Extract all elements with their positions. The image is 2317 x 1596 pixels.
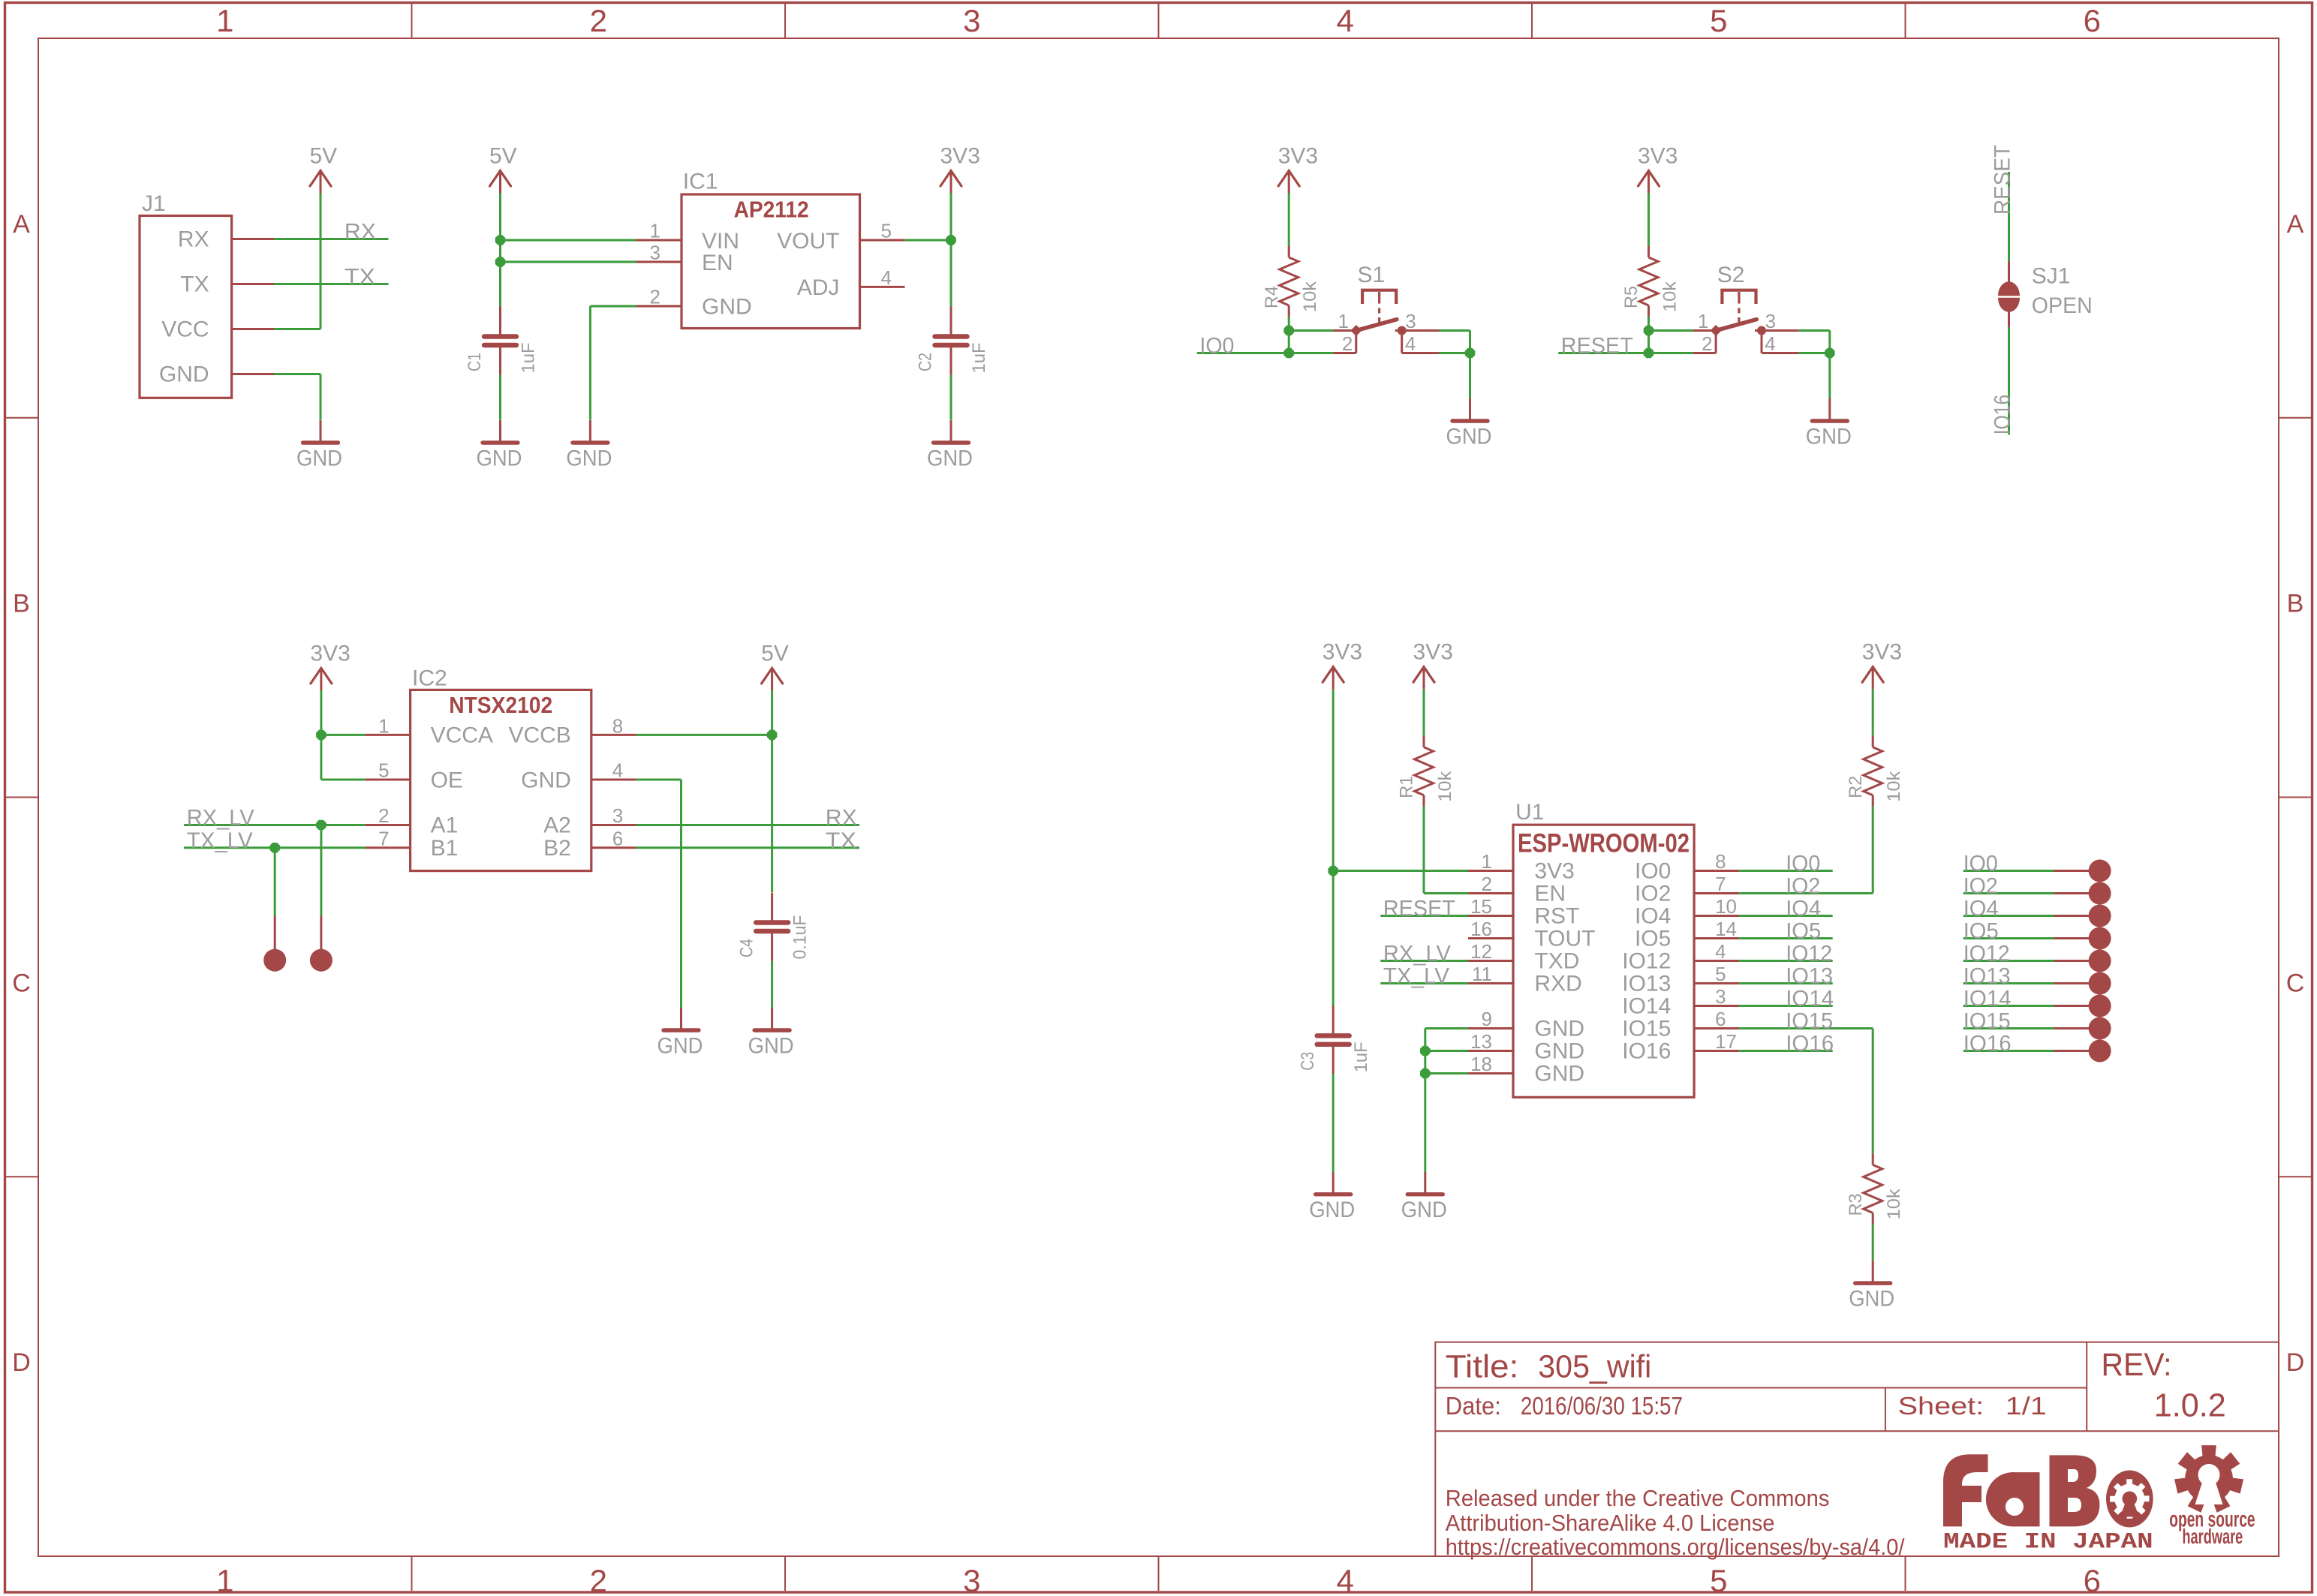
- svg-text:Date:: Date:: [1446, 1392, 1501, 1420]
- svg-text:IO16: IO16: [1963, 1032, 2012, 1056]
- svg-text:NTSX2102: NTSX2102: [449, 692, 552, 718]
- svg-text:R1: R1: [1397, 776, 1417, 798]
- svg-text:A2: A2: [543, 813, 571, 838]
- svg-text:IC1: IC1: [683, 170, 718, 194]
- svg-text:1: 1: [650, 220, 660, 242]
- svg-text:A: A: [2287, 210, 2304, 239]
- svg-text:3: 3: [612, 804, 623, 827]
- svg-text:10k: 10k: [1435, 771, 1455, 802]
- svg-text:OPEN: OPEN: [2032, 293, 2093, 318]
- svg-text:5: 5: [1715, 963, 1726, 985]
- svg-text:GND: GND: [477, 446, 522, 471]
- svg-text:B: B: [2287, 590, 2304, 618]
- svg-text:1: 1: [1338, 310, 1349, 332]
- svg-text:6: 6: [1715, 1008, 1726, 1030]
- svg-text:IO0: IO0: [1786, 852, 1820, 876]
- svg-text:4: 4: [881, 266, 892, 289]
- svg-text:3V3: 3V3: [1413, 640, 1453, 665]
- svg-text:B: B: [13, 590, 30, 618]
- svg-text:RX: RX: [345, 220, 376, 245]
- svg-text:2: 2: [590, 3, 607, 38]
- svg-text:IO4: IO4: [1963, 897, 1999, 921]
- svg-text:2: 2: [590, 1563, 607, 1596]
- svg-text:6: 6: [2084, 3, 2101, 38]
- svg-text:10k: 10k: [1660, 281, 1681, 312]
- svg-text:S1: S1: [1358, 263, 1386, 287]
- svg-text:MADE IN JAPAN: MADE IN JAPAN: [1943, 1529, 2153, 1555]
- svg-text:D: D: [12, 1348, 31, 1377]
- svg-text:3V3: 3V3: [1278, 144, 1318, 169]
- svg-text:C: C: [12, 969, 31, 997]
- svg-text:1: 1: [1698, 310, 1708, 332]
- svg-text:EN: EN: [1534, 882, 1566, 906]
- svg-text:IO0: IO0: [1963, 852, 1998, 876]
- svg-text:S2: S2: [1717, 263, 1745, 287]
- svg-text:IO14: IO14: [1963, 987, 2012, 1011]
- svg-text:https://creativecommons.org/li: https://creativecommons.org/licenses/by-…: [1446, 1534, 1905, 1560]
- svg-text:RESET: RESET: [1991, 145, 2015, 215]
- svg-text:16: 16: [1470, 918, 1492, 940]
- svg-text:GND: GND: [159, 362, 209, 387]
- svg-text:ESP-WROOM-02: ESP-WROOM-02: [1518, 828, 1690, 858]
- svg-text:A1: A1: [431, 813, 459, 838]
- svg-text:R3: R3: [1846, 1193, 1866, 1216]
- svg-text:IO4: IO4: [1786, 897, 1821, 921]
- svg-text:15: 15: [1470, 895, 1492, 918]
- svg-text:TX: TX: [826, 828, 856, 853]
- svg-text:GND: GND: [1534, 1017, 1584, 1041]
- svg-text:5: 5: [881, 220, 892, 242]
- svg-text:6: 6: [2084, 1563, 2101, 1596]
- svg-text:1uF: 1uF: [1351, 1041, 1371, 1072]
- svg-text:5: 5: [1710, 1563, 1727, 1596]
- svg-text:A: A: [13, 210, 30, 239]
- svg-text:4: 4: [1405, 332, 1416, 355]
- svg-text:VCCB: VCCB: [508, 723, 570, 748]
- svg-text:2: 2: [378, 804, 389, 827]
- svg-text:10k: 10k: [1884, 771, 1904, 802]
- svg-text:1: 1: [216, 1563, 233, 1596]
- svg-text:C: C: [2286, 969, 2305, 997]
- svg-text:RX: RX: [178, 227, 209, 252]
- svg-text:4: 4: [1337, 3, 1354, 38]
- svg-text:J1: J1: [142, 191, 166, 216]
- svg-text:IO5: IO5: [1635, 927, 1671, 951]
- svg-text:5V: 5V: [489, 144, 517, 169]
- svg-text:IO12: IO12: [1786, 942, 1832, 966]
- svg-text:IO0: IO0: [1635, 859, 1671, 884]
- svg-text:8: 8: [1715, 850, 1726, 873]
- svg-text:7: 7: [378, 827, 389, 849]
- svg-text:10k: 10k: [1300, 281, 1320, 312]
- svg-text:IO12: IO12: [1622, 949, 1671, 974]
- svg-text:18: 18: [1470, 1053, 1492, 1075]
- svg-text:5V: 5V: [761, 641, 789, 666]
- svg-text:9: 9: [1482, 1008, 1492, 1030]
- svg-text:TOUT: TOUT: [1534, 927, 1595, 951]
- svg-text:7: 7: [1715, 873, 1726, 895]
- svg-text:12: 12: [1470, 940, 1492, 963]
- svg-text:TX: TX: [180, 272, 209, 297]
- svg-text:U1: U1: [1515, 800, 1544, 825]
- svg-text:C3: C3: [1298, 1052, 1318, 1071]
- svg-text:GND: GND: [1446, 425, 1492, 449]
- svg-text:Attribution-ShareAlike 4.0 Lic: Attribution-ShareAlike 4.0 License: [1446, 1510, 1775, 1536]
- svg-text:R2: R2: [1846, 776, 1866, 798]
- svg-text:IO15: IO15: [1622, 1017, 1671, 1041]
- svg-text:GND: GND: [702, 295, 752, 320]
- svg-text:REV:: REV:: [2102, 1347, 2172, 1383]
- svg-text:TXD: TXD: [1534, 949, 1579, 974]
- svg-text:VCC: VCC: [161, 317, 209, 342]
- svg-text:GND: GND: [927, 446, 973, 471]
- svg-text:3V3: 3V3: [1638, 144, 1678, 169]
- svg-text:IO2: IO2: [1786, 874, 1820, 899]
- svg-text:IO16: IO16: [1786, 1032, 1834, 1056]
- svg-text:GND: GND: [1309, 1198, 1355, 1222]
- svg-text:1uF: 1uF: [969, 343, 989, 374]
- svg-text:RXD: RXD: [1534, 972, 1581, 996]
- svg-text:GND: GND: [1534, 1062, 1584, 1087]
- svg-text:hardware: hardware: [2182, 1525, 2243, 1548]
- svg-text:TX_LV: TX_LV: [187, 828, 253, 853]
- svg-text:D: D: [2286, 1348, 2305, 1377]
- svg-text:10: 10: [1715, 895, 1737, 918]
- svg-text:IO4: IO4: [1635, 904, 1671, 929]
- svg-text:10k: 10k: [1884, 1188, 1904, 1219]
- svg-text:R4: R4: [1262, 286, 1282, 308]
- svg-text:Released under the Creative Co: Released under the Creative Commons: [1446, 1485, 1830, 1511]
- svg-text:1.0.2: 1.0.2: [2154, 1387, 2226, 1424]
- svg-text:IO15: IO15: [1786, 1009, 1833, 1034]
- svg-text:4: 4: [1337, 1563, 1354, 1596]
- svg-text:4: 4: [1765, 332, 1775, 355]
- svg-text:TX: TX: [345, 265, 375, 290]
- svg-text:2: 2: [1702, 332, 1712, 355]
- svg-text:6: 6: [612, 827, 623, 849]
- svg-text:2: 2: [650, 286, 660, 308]
- svg-text:5V: 5V: [310, 144, 338, 169]
- svg-text:RESET: RESET: [1383, 897, 1455, 921]
- svg-text:4: 4: [1715, 940, 1726, 963]
- svg-text:RESET: RESET: [1561, 334, 1633, 359]
- svg-text:B1: B1: [431, 836, 459, 861]
- svg-text:3V3: 3V3: [1322, 640, 1362, 665]
- svg-text:1: 1: [1482, 850, 1492, 873]
- svg-text:GND: GND: [1849, 1287, 1894, 1312]
- svg-text:AP2112: AP2112: [734, 197, 809, 223]
- svg-text:0.1uF: 0.1uF: [790, 915, 811, 960]
- svg-text:1uF: 1uF: [519, 343, 539, 374]
- svg-text:C4: C4: [736, 939, 757, 957]
- svg-text:R5: R5: [1621, 286, 1641, 308]
- svg-text:IO14: IO14: [1786, 987, 1834, 1011]
- svg-text:EN: EN: [702, 251, 733, 275]
- svg-text:C1: C1: [465, 353, 485, 371]
- svg-text:IO0: IO0: [1199, 334, 1234, 359]
- svg-text:GND: GND: [566, 446, 612, 471]
- svg-text:3: 3: [1715, 985, 1726, 1008]
- svg-text:OE: OE: [431, 768, 463, 793]
- svg-text:ADJ: ADJ: [797, 275, 840, 300]
- svg-text:3: 3: [650, 242, 660, 264]
- svg-text:IO5: IO5: [1786, 919, 1821, 944]
- svg-text:Title:: Title:: [1446, 1348, 1519, 1384]
- svg-text:IO15: IO15: [1963, 1009, 2011, 1034]
- svg-text:3: 3: [1765, 310, 1776, 332]
- svg-text:GND: GND: [1806, 425, 1852, 449]
- svg-text:GND: GND: [296, 446, 342, 471]
- svg-text:C2: C2: [916, 353, 936, 371]
- svg-text:RX_LV: RX_LV: [187, 806, 254, 831]
- svg-text:IO13: IO13: [1786, 964, 1833, 989]
- svg-text:3V3: 3V3: [1862, 640, 1902, 665]
- svg-text:3V3: 3V3: [940, 144, 980, 169]
- svg-text:B2: B2: [543, 836, 571, 861]
- svg-text:GND: GND: [1534, 1039, 1584, 1064]
- svg-text:GND: GND: [748, 1034, 794, 1059]
- svg-text:VCCA: VCCA: [431, 723, 493, 748]
- svg-text:SJ1: SJ1: [2032, 264, 2071, 289]
- svg-text:IO2: IO2: [1963, 874, 1998, 899]
- svg-text:IO12: IO12: [1963, 942, 2010, 966]
- svg-text:4: 4: [612, 759, 623, 782]
- svg-text:3: 3: [963, 3, 980, 38]
- svg-text:1/1: 1/1: [2006, 1392, 2047, 1420]
- svg-text:5: 5: [378, 759, 389, 782]
- svg-text:11: 11: [1472, 963, 1492, 985]
- svg-text:IO5: IO5: [1963, 919, 1999, 944]
- svg-text:3: 3: [1405, 310, 1416, 332]
- svg-text:305_wifi: 305_wifi: [1538, 1348, 1651, 1384]
- svg-text:2016/06/30 15:57: 2016/06/30 15:57: [1521, 1392, 1683, 1420]
- svg-text:3V3: 3V3: [1534, 859, 1574, 884]
- svg-text:17: 17: [1715, 1030, 1737, 1053]
- svg-text:13: 13: [1470, 1030, 1492, 1053]
- svg-text:RX_LV: RX_LV: [1383, 942, 1451, 966]
- svg-text:IO13: IO13: [1622, 972, 1671, 996]
- svg-text:2: 2: [1482, 873, 1492, 895]
- svg-text:3V3: 3V3: [310, 641, 350, 666]
- svg-text:RST: RST: [1534, 904, 1579, 929]
- svg-text:RX: RX: [826, 806, 857, 831]
- svg-text:VOUT: VOUT: [777, 229, 839, 254]
- svg-text:IO14: IO14: [1622, 994, 1671, 1019]
- svg-text:IC2: IC2: [412, 666, 447, 690]
- svg-text:IO2: IO2: [1635, 882, 1671, 906]
- svg-text:1: 1: [216, 3, 233, 38]
- svg-text:14: 14: [1715, 918, 1737, 940]
- svg-text:2: 2: [1342, 332, 1353, 355]
- svg-text:TX_LV: TX_LV: [1383, 964, 1449, 989]
- svg-text:IO16: IO16: [1991, 395, 2015, 434]
- svg-text:GND: GND: [657, 1034, 703, 1059]
- svg-text:GND: GND: [1401, 1198, 1447, 1222]
- svg-text:Sheet:: Sheet:: [1898, 1392, 1984, 1420]
- svg-text:3: 3: [963, 1563, 980, 1596]
- svg-text:GND: GND: [521, 768, 571, 793]
- svg-text:5: 5: [1710, 3, 1727, 38]
- svg-text:1: 1: [378, 714, 389, 737]
- svg-text:IO13: IO13: [1963, 964, 2011, 989]
- svg-text:IO16: IO16: [1622, 1039, 1671, 1064]
